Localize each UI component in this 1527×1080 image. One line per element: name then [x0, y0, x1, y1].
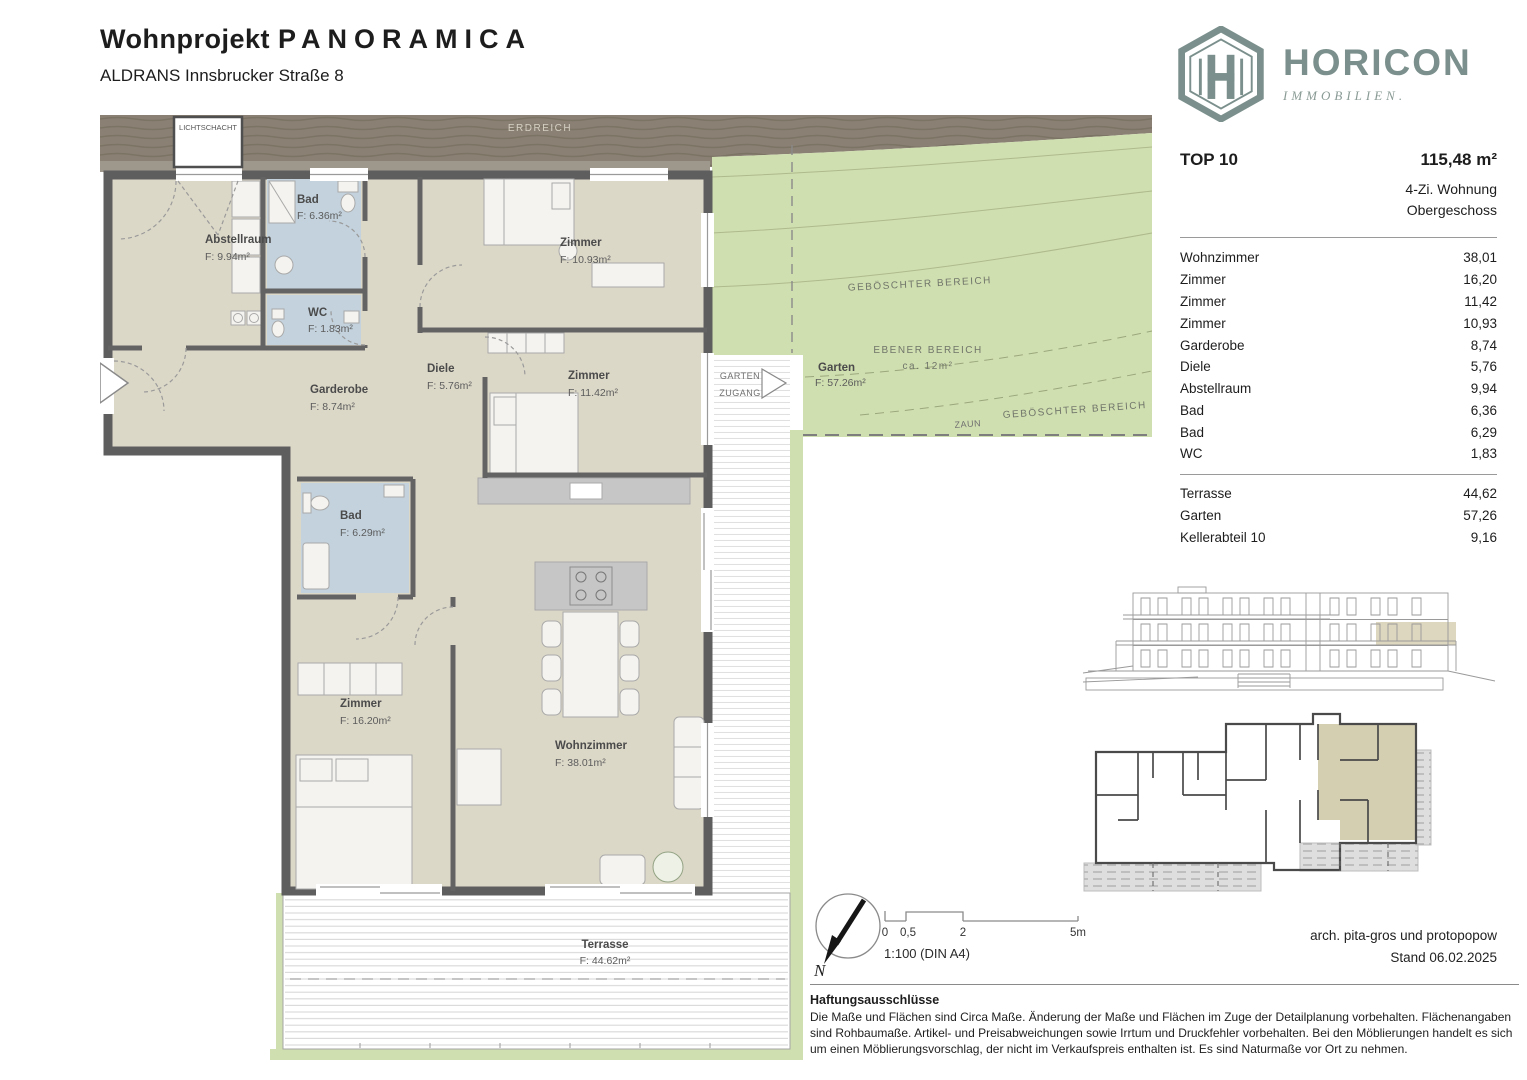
garden-strip-right — [790, 430, 803, 1060]
label-wc: WC — [308, 307, 327, 319]
area-bad-2: F: 6.29m² — [340, 527, 385, 539]
outdoor-label: Kellerabteil 10 — [1180, 530, 1266, 545]
page-title: WohnprojektPANORAMICA — [100, 24, 532, 55]
garten-area: F: 57.26m² — [815, 377, 866, 389]
room-label: Wohnzimmer — [1180, 250, 1259, 265]
label-bad-2: Bad — [340, 510, 362, 522]
brand-tagline: IMMOBILIEN. — [1283, 88, 1472, 104]
hexagon-house-icon — [1173, 26, 1269, 122]
unit-total-area: 115,48 m² — [1420, 150, 1497, 170]
unit-type: 4-Zi. Wohnung — [1180, 179, 1497, 200]
room-area: 8,74 — [1471, 338, 1497, 353]
room-area: 16,20 — [1463, 272, 1497, 287]
area-zimmer-1620: F: 16.20m² — [340, 715, 391, 727]
garten-zugang-label: GARTEN — [720, 371, 760, 381]
garden-strip-left — [276, 893, 283, 1053]
area-diele: F: 5.76m² — [427, 380, 472, 392]
flat-area-size: ca. 12m² — [903, 361, 954, 372]
zaun-label: ZAUN — [954, 418, 981, 430]
outdoor-row: Kellerabteil 109,16 — [1180, 526, 1497, 548]
outdoor-row: Garten57,26 — [1180, 505, 1497, 527]
scale-tick-5m: 5m — [1070, 927, 1086, 939]
label-garderobe: Garderobe — [310, 384, 368, 396]
lichtschacht-label: LICHTSCHACHT — [179, 123, 237, 132]
room-label: Zimmer — [1180, 316, 1226, 331]
outdoor-area: 57,26 — [1463, 508, 1497, 523]
area-wc: F: 1.83m² — [308, 323, 353, 335]
room-label: Diele — [1180, 359, 1211, 374]
room-label: Bad — [1180, 403, 1204, 418]
scale-tick-0: 0 — [882, 927, 888, 939]
area-wohnzimmer: F: 38.01m² — [555, 757, 606, 769]
garden-strip-bottom — [270, 1049, 803, 1060]
area-terrasse: F: 44.62m² — [580, 955, 631, 967]
room-label: WC — [1180, 446, 1203, 461]
room-row: Zimmer11,42 — [1180, 291, 1497, 313]
room-list: Wohnzimmer38,01 Zimmer16,20 Zimmer11,42 … — [1180, 247, 1497, 465]
erdreich-label: ERDREICH — [508, 123, 572, 134]
apartment-unit: Abstellraum F: 9.94m² Bad F: 6.36m² WC F… — [100, 168, 714, 897]
scale-bar: 0 0,5 2 5m — [882, 905, 1097, 941]
terrace: Terrasse F: 44.62m² — [283, 893, 790, 1049]
label-abstellraum: Abstellraum — [205, 234, 271, 246]
dining-table — [542, 612, 639, 717]
room-area: 1,83 — [1471, 446, 1497, 461]
room-area: 10,93 — [1463, 316, 1497, 331]
outdoor-label: Terrasse — [1180, 486, 1232, 501]
unit-floor: Obergeschoss — [1180, 200, 1497, 221]
unit-id: TOP 10 — [1180, 150, 1238, 170]
room-label: Bad — [1180, 425, 1204, 440]
project-address: ALDRANS Innsbrucker Straße 8 — [100, 66, 344, 86]
label-zimmer-1620: Zimmer — [340, 698, 382, 710]
unit-info-panel: TOP 10 115,48 m² 4-Zi. Wohnung Obergesch… — [1180, 150, 1497, 548]
company-logo: HORICON IMMOBILIEN. — [1173, 26, 1472, 122]
room-row: WC1,83 — [1180, 443, 1497, 465]
room-area: 38,01 — [1463, 250, 1497, 265]
kitchen-counter — [478, 478, 690, 504]
room-row: Bad6,36 — [1180, 399, 1497, 421]
outdoor-list: Terrasse44,62 Garten57,26 Kellerabteil 1… — [1180, 483, 1497, 548]
kitchen-island — [535, 562, 647, 610]
disclaimer-text: Die Maße und Flächen sind Circa Maße. Än… — [810, 1009, 1524, 1057]
room-label: Garderobe — [1180, 338, 1245, 353]
north-label: N — [813, 961, 827, 980]
light-shaft: LICHTSCHACHT — [174, 117, 242, 167]
date-stamp: Stand 06.02.2025 — [1100, 947, 1497, 969]
project-name-label: PANORAMICA — [278, 24, 532, 54]
scale-tick-05: 0,5 — [900, 927, 916, 939]
architect-credit: arch. pita-gros und protopopow — [1100, 925, 1497, 947]
room-row: Diele5,76 — [1180, 356, 1497, 378]
garten-label: Garten — [818, 362, 855, 374]
room-area: 5,76 — [1471, 359, 1497, 374]
label-zimmer-1093: Zimmer — [560, 237, 602, 249]
label-bad-1: Bad — [297, 194, 319, 206]
sofa — [674, 717, 704, 809]
flat-area-label: EBENER BEREICH — [873, 345, 982, 356]
label-wohnzimmer: Wohnzimmer — [555, 740, 628, 752]
area-abstellraum: F: 9.94m² — [205, 251, 250, 263]
room-area: 6,36 — [1471, 403, 1497, 418]
room-row: Wohnzimmer38,01 — [1180, 247, 1497, 269]
room-row: Garderobe8,74 — [1180, 334, 1497, 356]
footer-divider — [810, 984, 1519, 985]
area-zimmer-1093: F: 10.93m² — [560, 254, 611, 266]
room-row: Zimmer10,93 — [1180, 312, 1497, 334]
garden-access-walkway: GARTEN ZUGANG — [712, 355, 790, 891]
area-garderobe: F: 8.74m² — [310, 401, 355, 413]
outdoor-label: Garten — [1180, 508, 1221, 523]
area-zimmer-1142: F: 11.42m² — [568, 387, 618, 399]
disclaimer-title: Haftungsausschlüsse — [810, 993, 1524, 1007]
outdoor-area: 9,16 — [1471, 530, 1497, 545]
room-row: Abstellraum9,94 — [1180, 378, 1497, 400]
divider — [1180, 474, 1497, 475]
disclaimer: Haftungsausschlüsse Die Maße und Flächen… — [810, 993, 1524, 1057]
outdoor-area: 44,62 — [1463, 486, 1497, 501]
label-diele: Diele — [427, 363, 455, 375]
room-row: Zimmer16,20 — [1180, 269, 1497, 291]
room-area: 6,29 — [1471, 425, 1497, 440]
credits-block: arch. pita-gros und protopopow Stand 06.… — [1100, 925, 1497, 970]
room-area: 9,94 — [1471, 381, 1497, 396]
plant-icon — [653, 852, 683, 882]
scale-note: 1:100 (DIN A4) — [884, 946, 970, 961]
label-zimmer-1142: Zimmer — [568, 370, 610, 382]
lounge-chair — [600, 855, 645, 885]
garten-zugang-label2: ZUGANG — [719, 388, 761, 398]
label-terrasse: Terrasse — [581, 939, 628, 951]
divider — [1180, 237, 1497, 238]
room-label: Abstellraum — [1180, 381, 1251, 396]
north-arrow-icon: N — [812, 890, 884, 980]
page: { "header": { "title_main": "Wohnprojekt… — [0, 0, 1527, 1080]
sideboard — [457, 749, 501, 805]
scale-tick-2: 2 — [960, 927, 966, 939]
keyplan-unit-highlight — [1318, 724, 1416, 840]
project-type-label: Wohnprojekt — [100, 24, 270, 54]
outdoor-row: Terrasse44,62 — [1180, 483, 1497, 505]
room-area: 11,42 — [1464, 294, 1497, 309]
room-row: Bad6,29 — [1180, 421, 1497, 443]
room-label: Zimmer — [1180, 294, 1226, 309]
brand-name: HORICON — [1283, 44, 1472, 81]
area-bad-1: F: 6.36m² — [297, 210, 342, 222]
room-label: Zimmer — [1180, 272, 1226, 287]
